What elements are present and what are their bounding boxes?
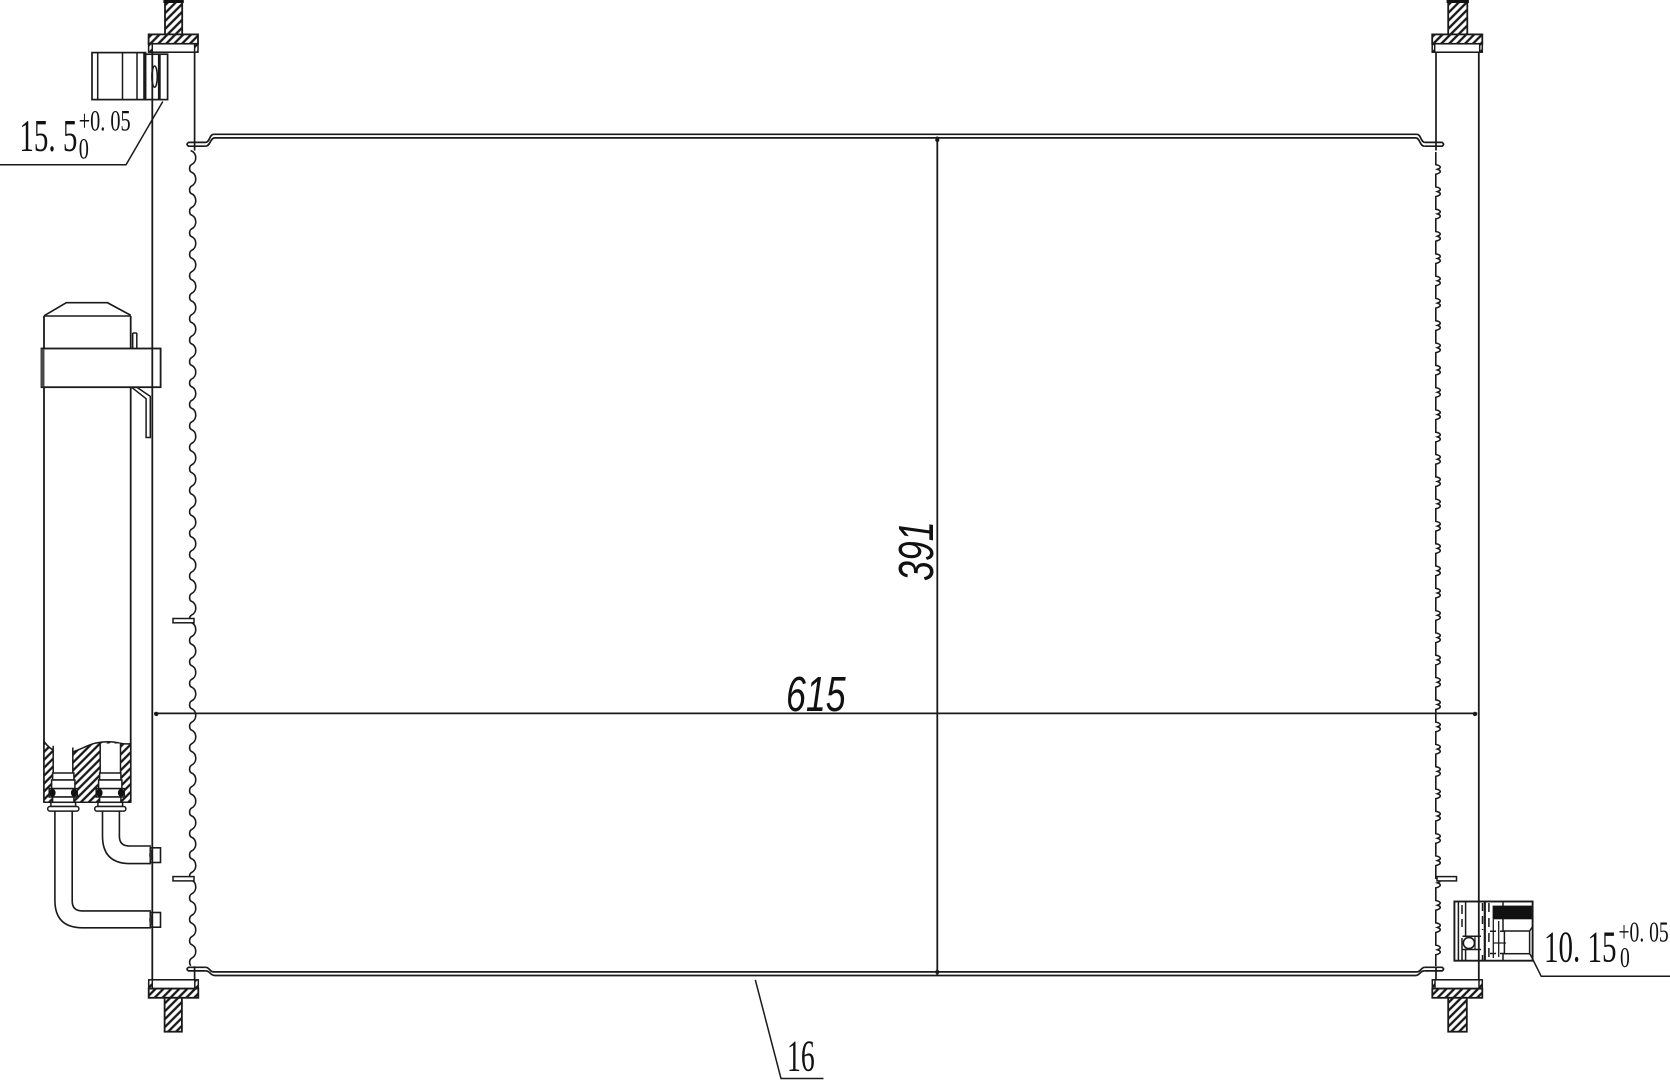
- svg-text:10. 15: 10. 15: [1544, 924, 1617, 972]
- svg-text:391: 391: [890, 521, 945, 581]
- svg-text:15. 5: 15. 5: [19, 112, 77, 162]
- svg-text:0: 0: [79, 132, 89, 166]
- svg-text:615: 615: [786, 668, 846, 723]
- svg-text:16: 16: [787, 1031, 815, 1080]
- svg-text:0: 0: [1620, 942, 1630, 974]
